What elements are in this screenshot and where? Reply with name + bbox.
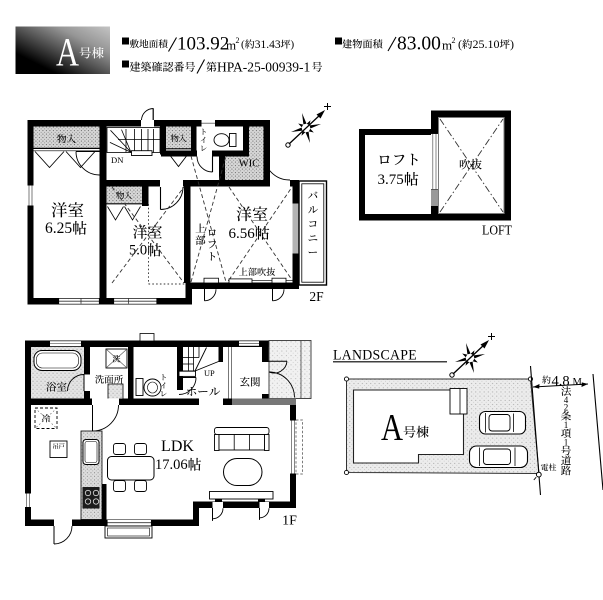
svg-text:1: 1: [564, 437, 569, 447]
svg-text:UP: UP: [204, 369, 215, 378]
svg-text:WIC: WIC: [239, 159, 259, 170]
svg-text:25.10: 25.10: [473, 37, 500, 51]
svg-text:1F: 1F: [282, 514, 297, 529]
svg-text:LOFT: LOFT: [482, 224, 512, 239]
svg-text:103.92: 103.92: [177, 34, 229, 55]
svg-text:(: (: [241, 39, 245, 51]
svg-text:3.75: 3.75: [378, 172, 404, 188]
svg-text:(: (: [458, 37, 462, 51]
svg-text:): ): [291, 39, 295, 51]
svg-text:2F: 2F: [309, 289, 324, 304]
svg-text:2: 2: [452, 36, 456, 45]
svg-text:17.06: 17.06: [155, 457, 188, 473]
svg-text:2: 2: [564, 403, 569, 413]
svg-text:DN: DN: [111, 155, 124, 165]
svg-text:83.00: 83.00: [397, 34, 441, 55]
svg-text:A: A: [56, 30, 79, 75]
svg-text:M: M: [573, 377, 583, 388]
svg-text:2: 2: [236, 36, 240, 45]
svg-text:LANDSCAPE: LANDSCAPE: [333, 348, 417, 364]
svg-text:1: 1: [564, 420, 569, 430]
svg-text:6.25: 6.25: [45, 220, 72, 237]
svg-text:A: A: [381, 407, 403, 449]
svg-text:): ): [510, 37, 514, 51]
svg-text:6.56: 6.56: [229, 226, 256, 242]
svg-text:HPA-25-00939-1: HPA-25-00939-1: [217, 59, 310, 74]
svg-text:31.43: 31.43: [255, 39, 281, 51]
svg-text:LDK: LDK: [161, 438, 194, 455]
